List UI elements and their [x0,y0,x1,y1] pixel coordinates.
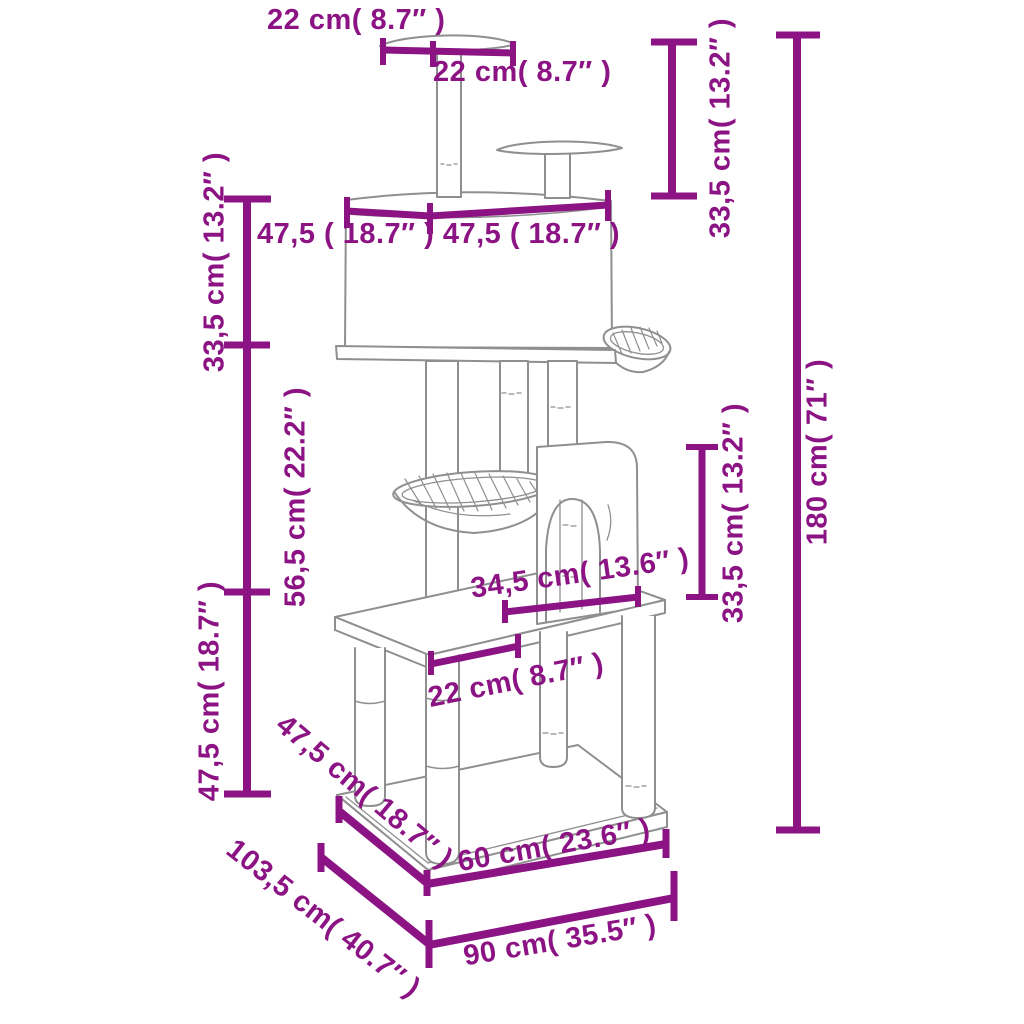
dim-label-condo-width: 47,5 ( 18.7″ ) 47,5 ( 18.7″ ) [257,220,620,249]
dim-label-lower-section-height: 47,5 cm( 18.7″ ) [196,581,225,801]
middle-basket [392,466,554,533]
dim-label-top-shelf-width: 22 cm( 8.7″ ) [267,6,445,35]
cat-tree-line-art [0,0,1024,1024]
dim-label-lower-house-height: 33,5 cm( 13.2″ ) [720,403,749,623]
upper-side-platform [497,141,622,198]
upper-basket [601,321,674,372]
dim-label-middle-section-height: 56,5 cm( 22.2″ ) [282,387,311,607]
dimension-diagram: 22 cm( 8.7″ ) 22 cm( 8.7″ ) 33,5 cm( 13.… [0,0,1024,1024]
dim-label-top-shelf-width-2: 22 cm( 8.7″ ) [433,58,611,87]
dim-line-lower-house-height [686,447,718,597]
dim-label-total-height: 180 cm( 71″ ) [804,359,833,545]
dim-line-left-heights [224,199,271,795]
dim-label-upper-section-height: 33,5 cm( 13.2″ ) [707,18,736,238]
dim-label-condo-height: 33,5 cm( 13.2″ ) [201,152,230,372]
dim-line-upper-right-height [651,42,697,196]
